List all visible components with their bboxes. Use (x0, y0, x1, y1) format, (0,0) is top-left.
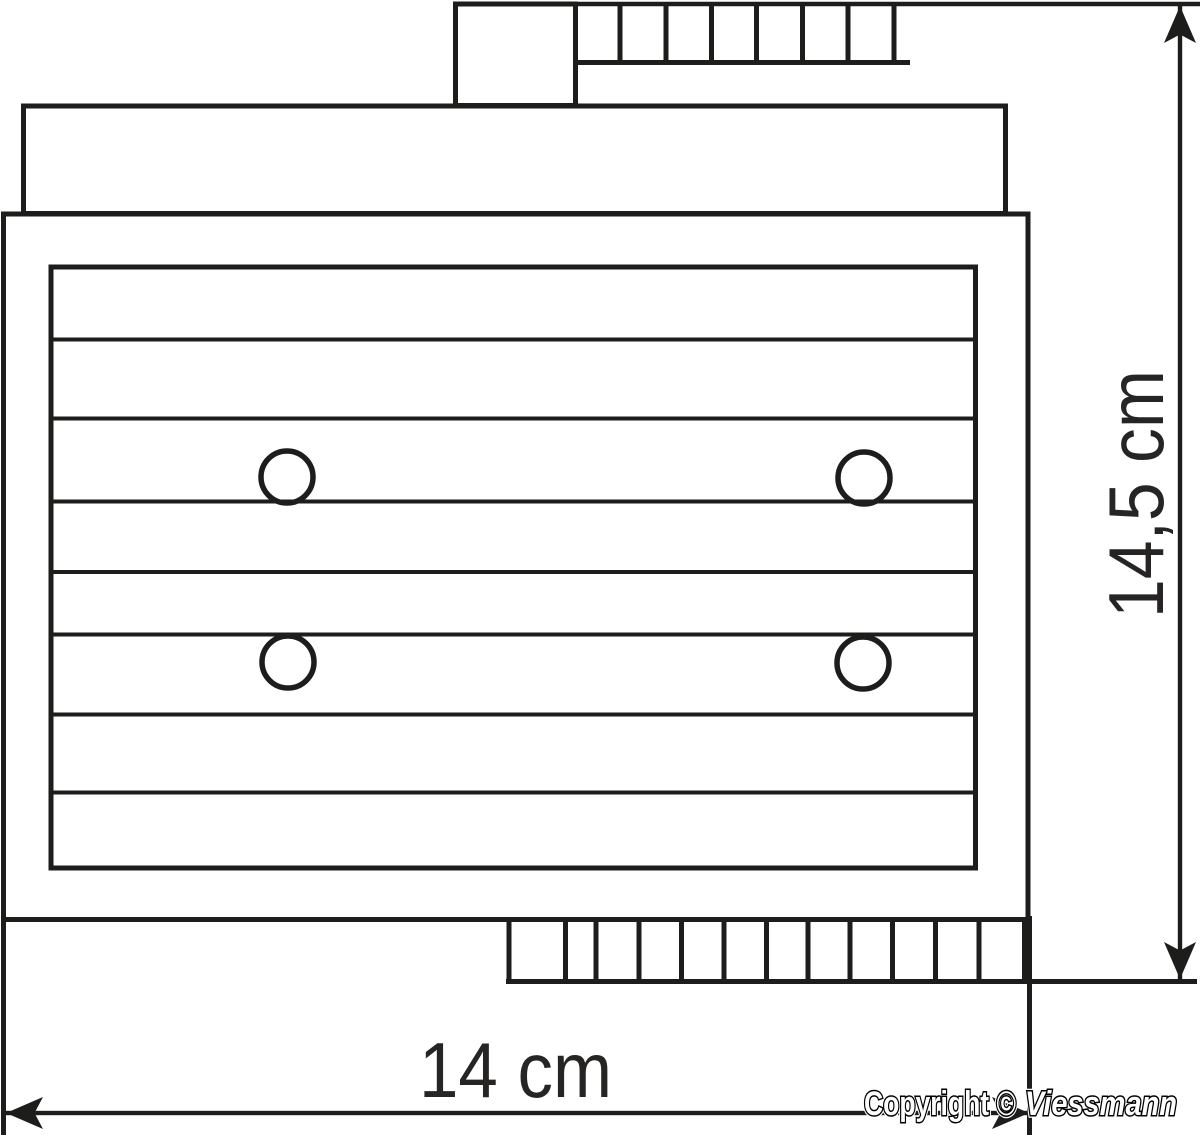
svg-text:Viessmann: Viessmann (1025, 1085, 1177, 1123)
svg-text:14,5 cm: 14,5 cm (1092, 370, 1180, 618)
svg-text:14 cm: 14 cm (419, 1026, 612, 1114)
svg-text:Copyright ©: Copyright © (864, 1085, 1016, 1123)
